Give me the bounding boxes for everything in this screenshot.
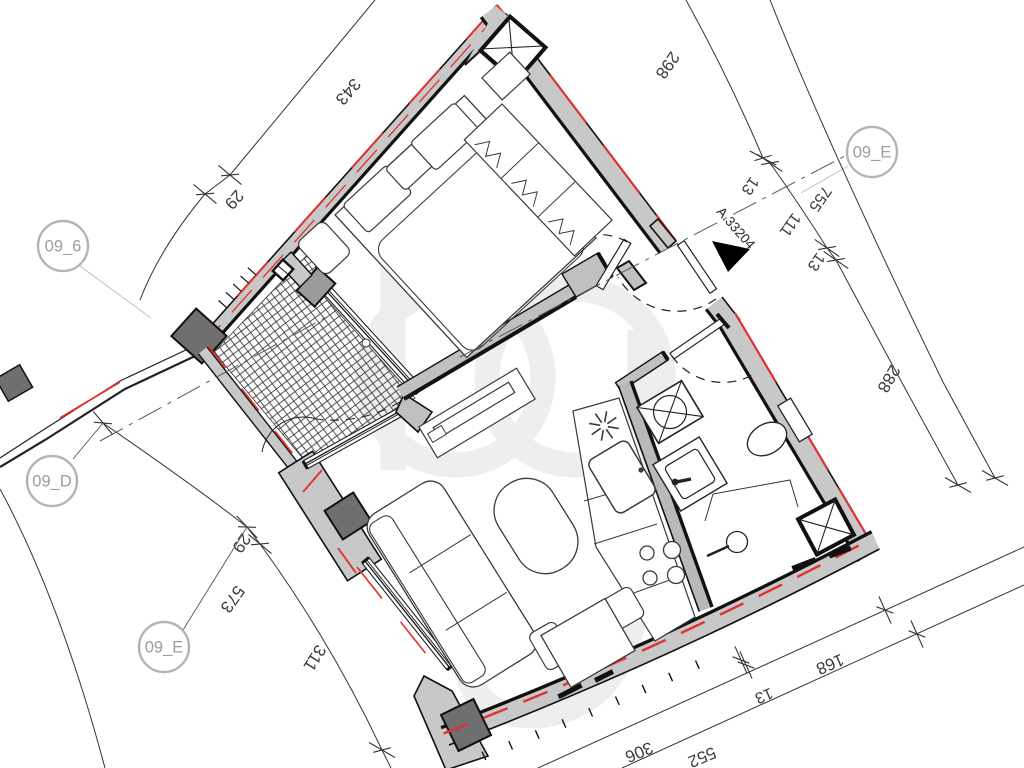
svg-text:09_E: 09_E bbox=[145, 639, 184, 657]
svg-text:09_6: 09_6 bbox=[45, 238, 82, 256]
svg-text:09_D: 09_D bbox=[32, 473, 72, 491]
svg-text:09_E: 09_E bbox=[853, 144, 892, 162]
